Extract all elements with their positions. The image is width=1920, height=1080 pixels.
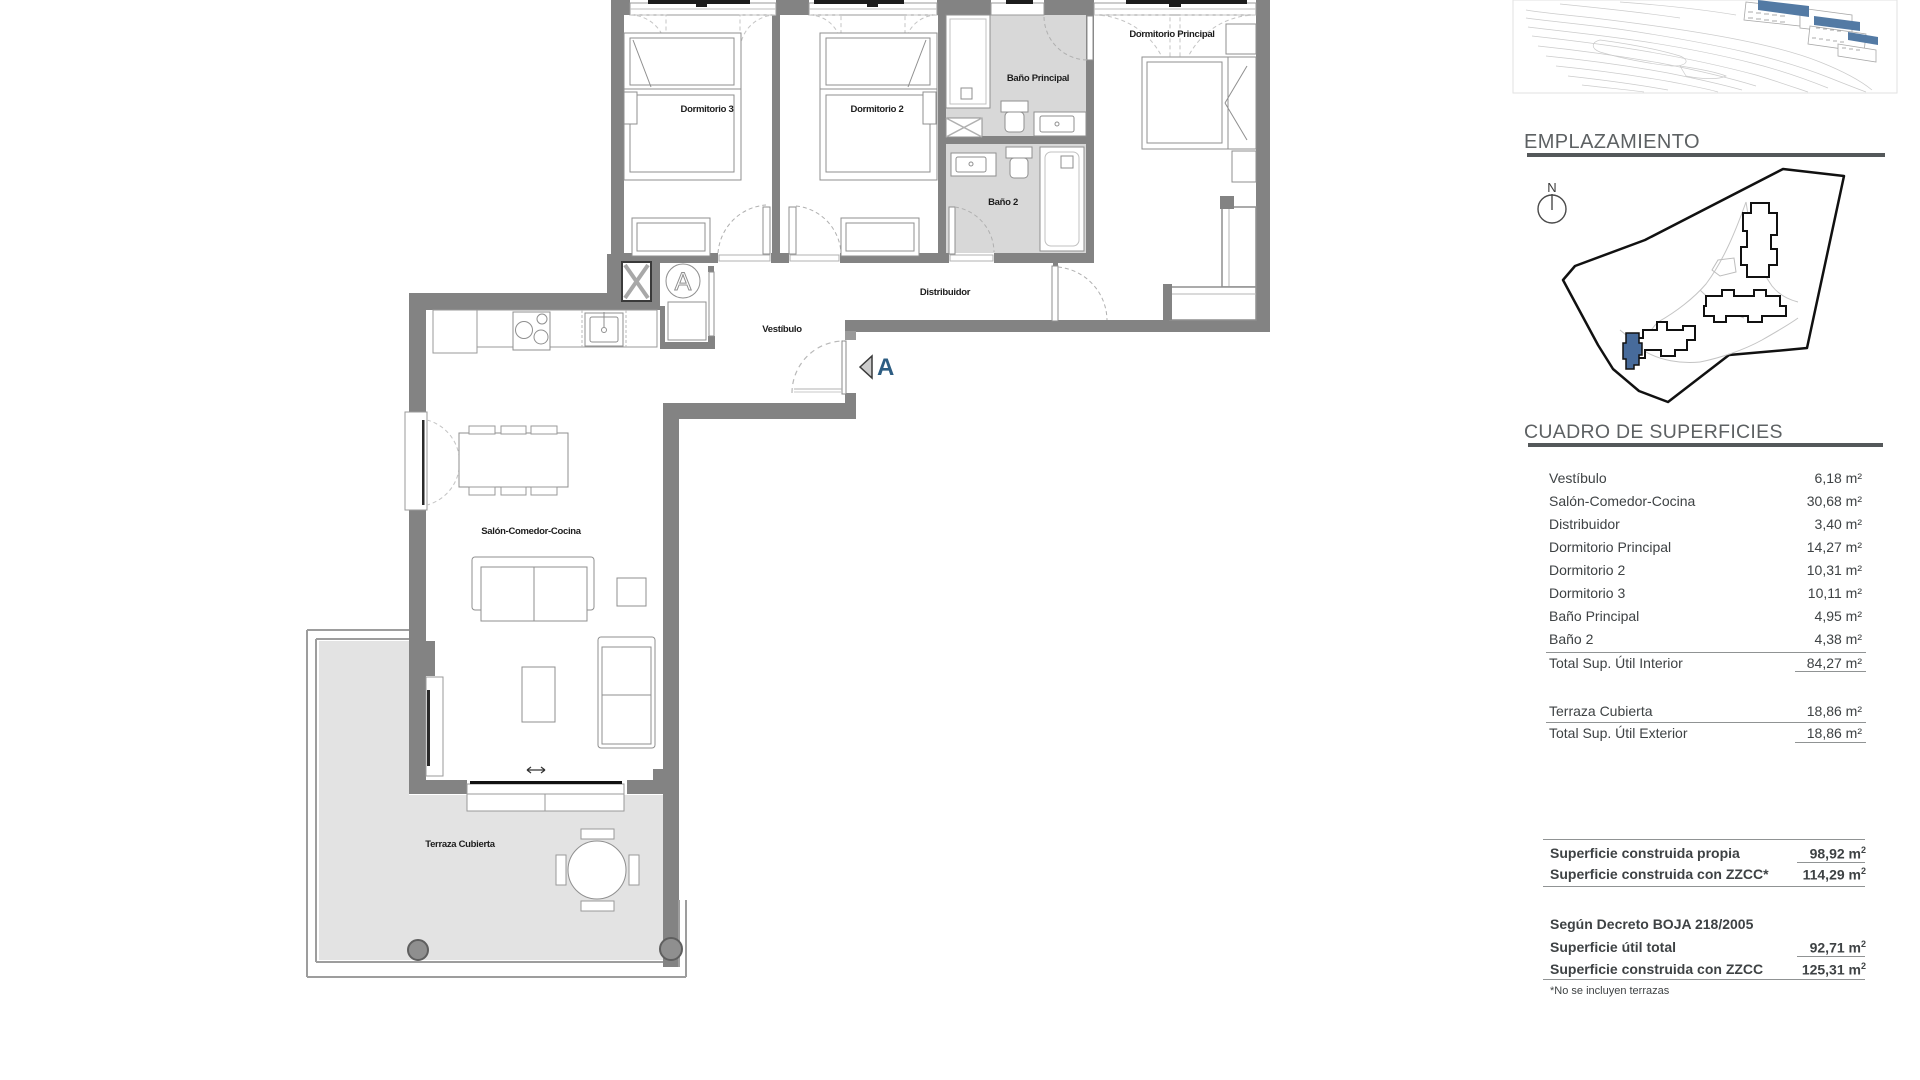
svg-text:A: A — [877, 354, 894, 381]
svg-text:N: N — [1547, 180, 1556, 195]
svg-text:Distribuidor: Distribuidor — [920, 287, 971, 298]
svg-text:A: A — [675, 268, 692, 296]
svg-text:Dormitorio 3: Dormitorio 3 — [681, 104, 734, 115]
svg-text:Baño Principal: Baño Principal — [1007, 73, 1069, 84]
svg-text:Baño 2: Baño 2 — [988, 197, 1018, 208]
svg-text:Terraza Cubierta: Terraza Cubierta — [425, 839, 495, 850]
svg-text:Salón-Comedor-Cocina: Salón-Comedor-Cocina — [481, 526, 582, 537]
svg-text:Dormitorio Principal: Dormitorio Principal — [1129, 29, 1214, 40]
svg-text:Dormitorio 2: Dormitorio 2 — [851, 104, 904, 115]
svg-text:Vestíbulo: Vestíbulo — [762, 324, 802, 335]
